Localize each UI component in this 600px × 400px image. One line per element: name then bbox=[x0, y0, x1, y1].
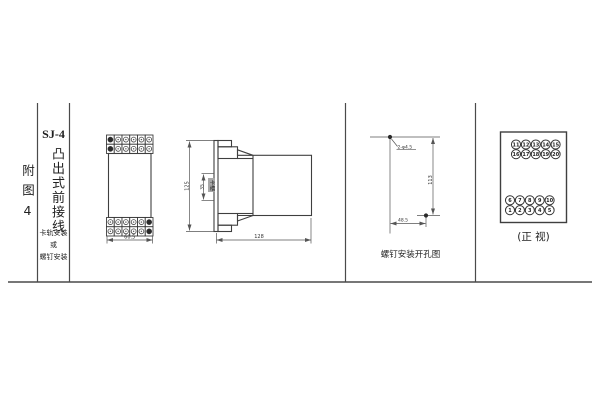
svg-text:5: 5 bbox=[548, 208, 552, 214]
figure-number-label: 附图4 bbox=[18, 164, 37, 225]
dim-height-label: 125 bbox=[185, 181, 191, 191]
svg-text:20: 20 bbox=[552, 152, 559, 158]
terminal-5: 5 bbox=[545, 206, 554, 215]
terminal-14: 14 bbox=[541, 140, 550, 149]
wiring-type-label: 凸出式前接线 bbox=[47, 147, 66, 234]
svg-text:19: 19 bbox=[542, 152, 549, 158]
terminal-4: 4 bbox=[535, 206, 544, 215]
terminal-12: 12 bbox=[521, 140, 530, 149]
screw-icon bbox=[147, 229, 152, 234]
mounting-note-line1: 卡轨安装 bbox=[37, 227, 70, 239]
slot-label: 卡槽 bbox=[208, 178, 215, 192]
svg-text:14: 14 bbox=[542, 142, 549, 148]
mounting-note: 卡轨安装 或 螺钉安装 bbox=[37, 227, 70, 263]
terminal-18: 18 bbox=[531, 150, 540, 159]
svg-text:13: 13 bbox=[532, 142, 539, 148]
svg-text:2: 2 bbox=[518, 208, 522, 214]
svg-text:6: 6 bbox=[508, 198, 512, 204]
svg-text:4: 4 bbox=[538, 208, 542, 214]
mounting-note-line2: 或 bbox=[37, 239, 70, 251]
svg-text:17: 17 bbox=[522, 152, 529, 158]
drill-plan-caption: 螺钉安装开孔图 bbox=[373, 248, 448, 260]
svg-text:11: 11 bbox=[513, 142, 520, 148]
relay-body-side bbox=[253, 155, 312, 215]
terminal-17: 17 bbox=[521, 150, 530, 159]
dim-depth-label: 128 bbox=[254, 234, 264, 240]
bottom-terminal-block bbox=[107, 218, 154, 237]
terminal-9: 9 bbox=[535, 196, 544, 205]
svg-text:15: 15 bbox=[552, 142, 559, 148]
terminal-8: 8 bbox=[525, 196, 534, 205]
horizontal-dimension: 48.5 bbox=[391, 218, 427, 228]
holes-label: 2-φ4.5 bbox=[398, 144, 413, 150]
svg-text:18: 18 bbox=[532, 152, 539, 158]
depth-dimension: 128 bbox=[217, 218, 312, 244]
svg-text:9: 9 bbox=[538, 198, 542, 204]
svg-text:10: 10 bbox=[546, 198, 553, 204]
top-flange bbox=[218, 141, 253, 159]
terminal-6: 6 bbox=[505, 196, 514, 205]
dim-slot-label: 35 bbox=[199, 184, 205, 190]
drill-hole-bottom bbox=[424, 213, 428, 217]
terminal-16: 16 bbox=[511, 150, 520, 159]
holes-callout: 2-φ4.5 bbox=[392, 139, 417, 150]
fig-front-view: 11 12 13 14 15 16 17 18 19 20 6 7 8 9 10… bbox=[501, 132, 567, 223]
dim-width-label: 60.5 bbox=[124, 234, 135, 240]
dim-113-label: 113 bbox=[428, 175, 434, 185]
terminal-10: 10 bbox=[545, 196, 554, 205]
terminal-2: 2 bbox=[515, 206, 524, 215]
drill-hole-top bbox=[388, 135, 392, 139]
terminal-3: 3 bbox=[525, 206, 534, 215]
mounting-note-line3: 螺钉安装 bbox=[37, 251, 70, 263]
relay-case-front bbox=[109, 154, 152, 218]
fig-drill-plan: 2-φ4.5 113 48.5 bbox=[370, 135, 440, 234]
fig-side-view: 125 35 bbox=[185, 141, 312, 244]
terminal-11: 11 bbox=[511, 140, 520, 149]
screw-icon bbox=[147, 220, 152, 225]
terminal-7: 7 bbox=[515, 196, 524, 205]
terminal-group-bottom: 6 7 8 9 10 1 2 3 4 5 bbox=[505, 196, 554, 215]
svg-text:16: 16 bbox=[513, 152, 520, 158]
svg-text:12: 12 bbox=[522, 142, 529, 148]
svg-text:3: 3 bbox=[528, 208, 532, 214]
terminal-group-top: 11 12 13 14 15 16 17 18 19 20 bbox=[511, 140, 560, 159]
vertical-dimension: 113 bbox=[428, 138, 434, 215]
table-grid bbox=[8, 103, 592, 282]
terminal-15: 15 bbox=[551, 140, 560, 149]
terminal-1: 1 bbox=[505, 206, 514, 215]
svg-text:7: 7 bbox=[518, 198, 522, 204]
screw-icon bbox=[108, 146, 113, 151]
dim-48-label: 48.5 bbox=[398, 218, 408, 224]
svg-text:8: 8 bbox=[528, 198, 532, 204]
manual-page: 60.5 125 bbox=[0, 0, 600, 400]
terminal-13: 13 bbox=[531, 140, 540, 149]
bottom-flange bbox=[218, 214, 253, 232]
model-label: SJ-4 bbox=[38, 127, 69, 142]
terminal-20: 20 bbox=[551, 150, 560, 159]
top-terminal-block bbox=[107, 135, 154, 154]
terminal-19: 19 bbox=[541, 150, 550, 159]
front-view-caption: (正 视) bbox=[503, 229, 564, 244]
svg-text:1: 1 bbox=[508, 208, 512, 214]
screw-icon bbox=[108, 137, 113, 142]
fig-terminal-front-view: 60.5 bbox=[107, 135, 154, 244]
technical-drawing-canvas: 60.5 125 bbox=[0, 0, 600, 400]
